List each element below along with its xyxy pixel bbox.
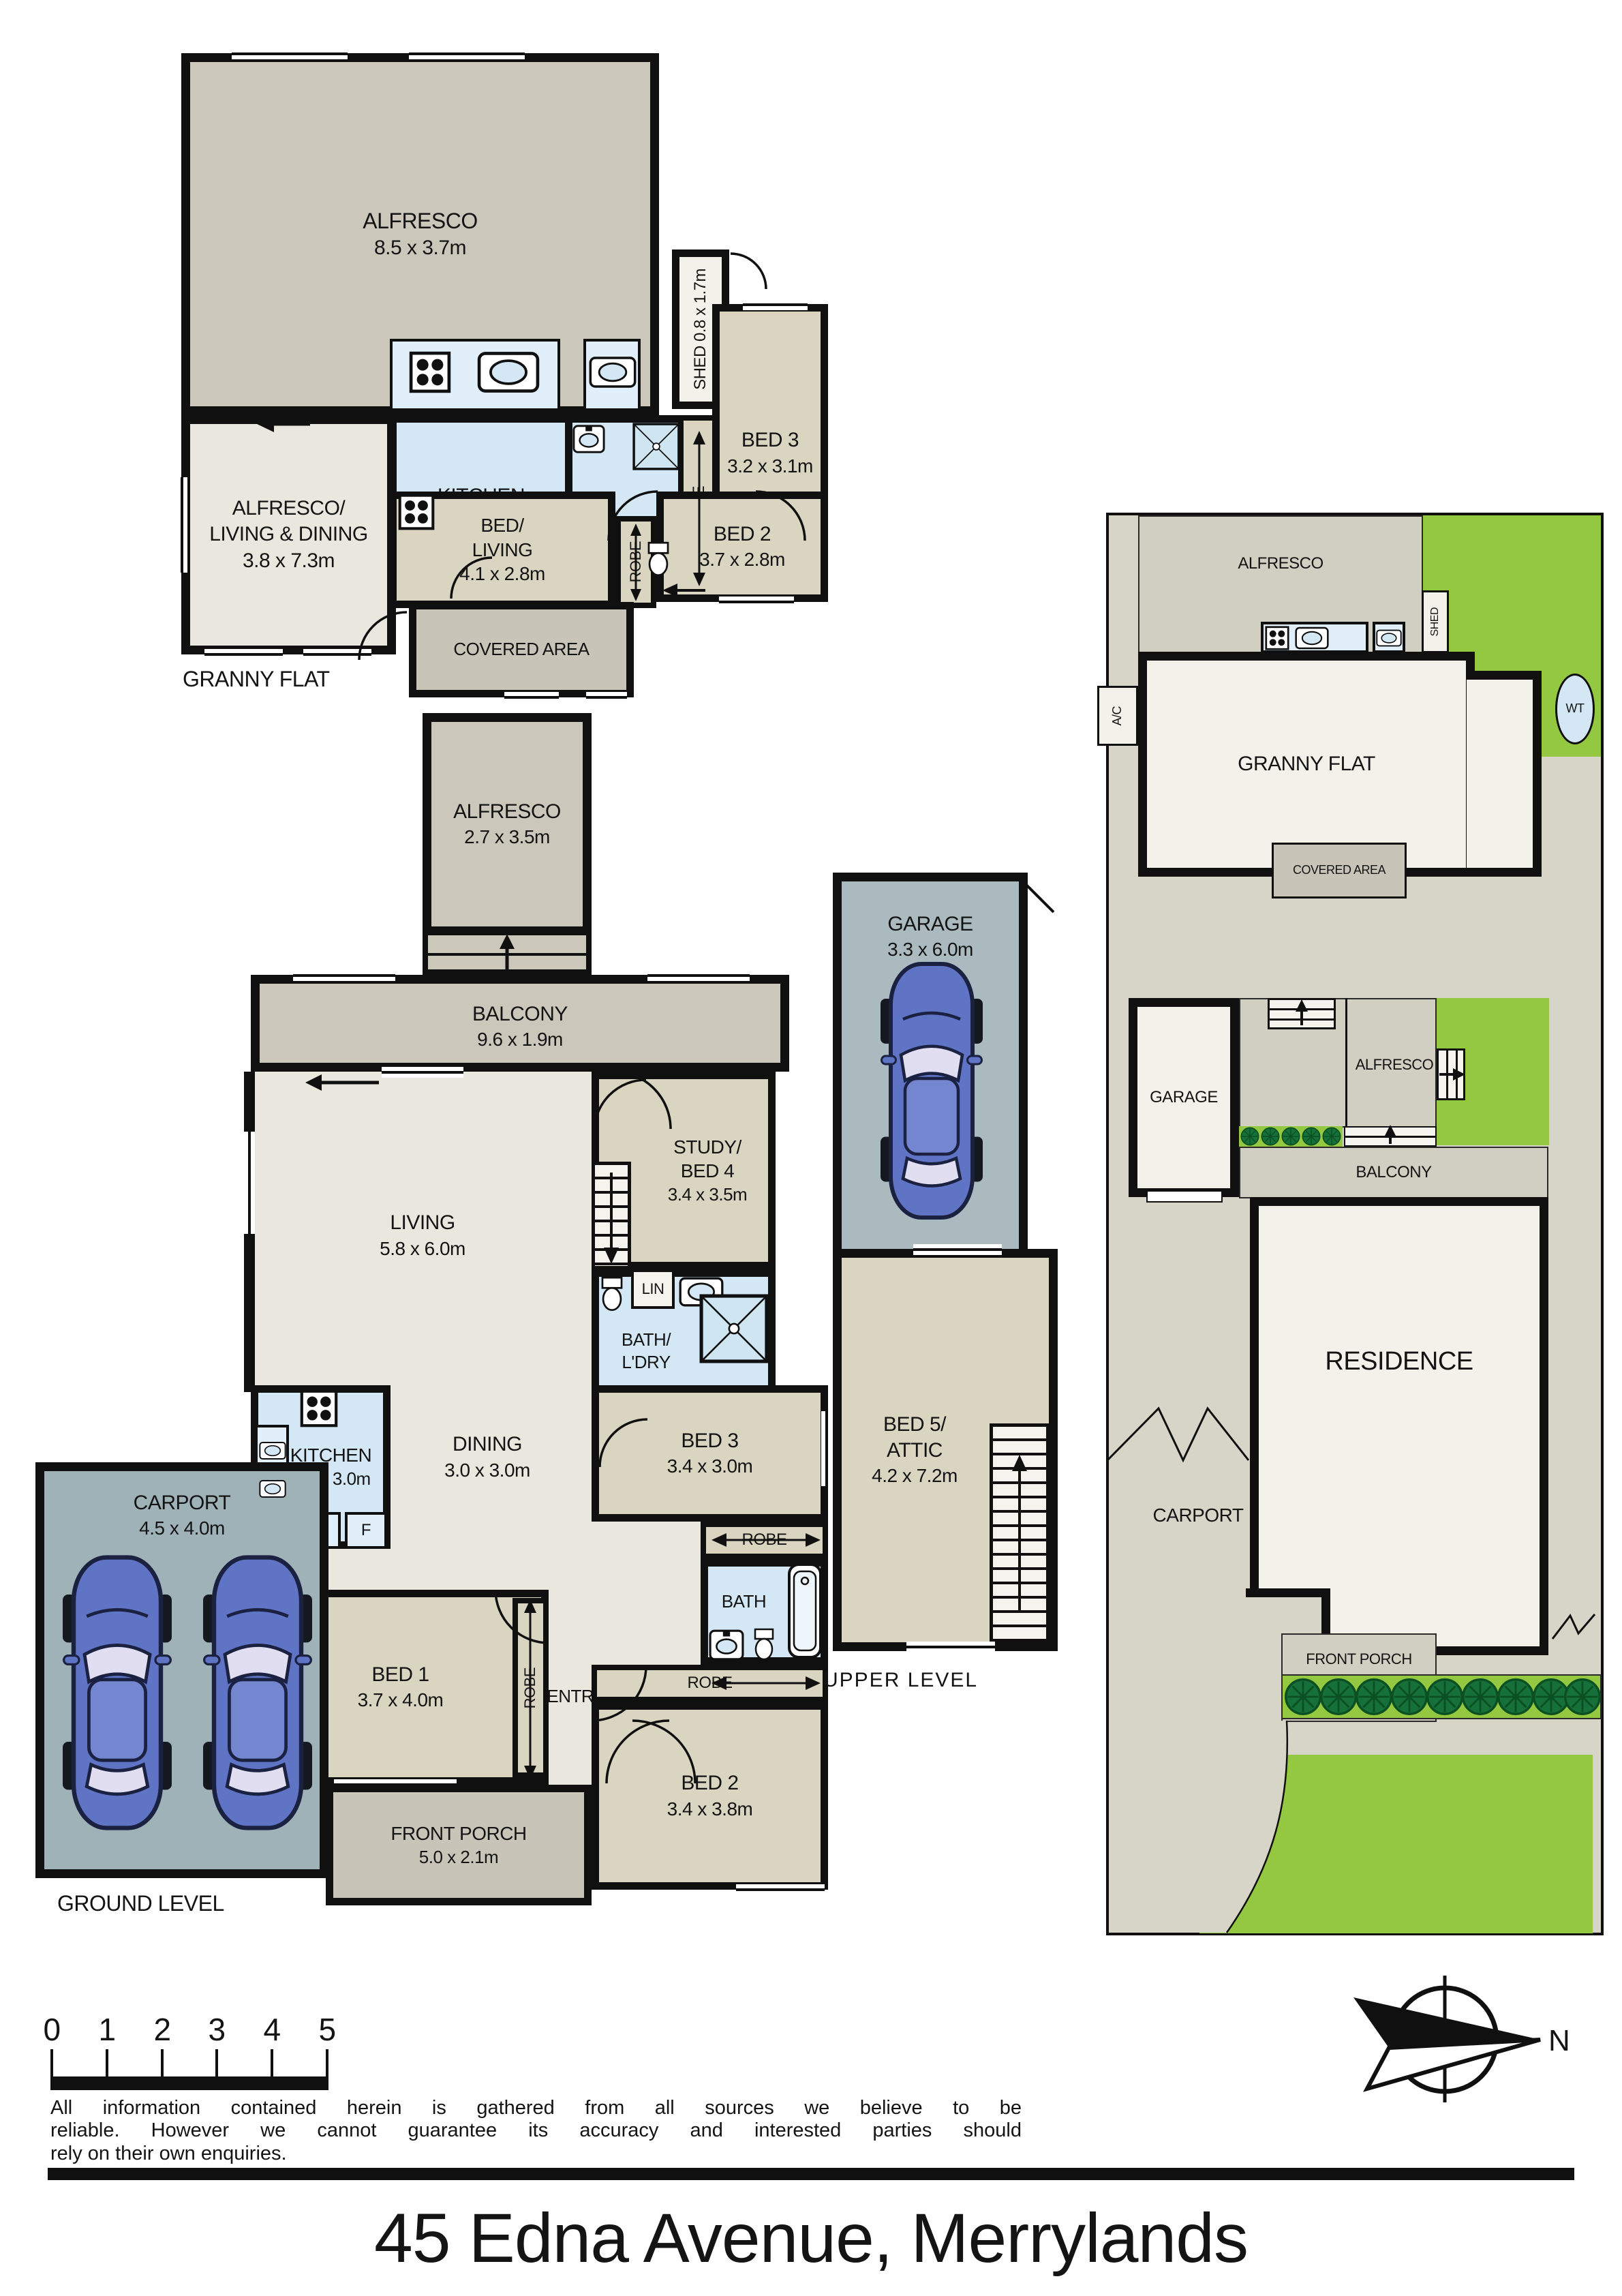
site-porch-label: FRONT PORCH (1306, 1650, 1411, 1669)
gf-bench-kitchen (390, 339, 560, 411)
site-wt-label: WT (1566, 701, 1585, 716)
site-shed: SHED (1422, 590, 1449, 653)
window (177, 477, 187, 573)
scale-3: 3 (208, 2010, 225, 2050)
gl-balcony-label: BALCONY (472, 1001, 568, 1027)
scale-2: 2 (153, 2010, 170, 2050)
window (382, 1067, 463, 1078)
site-covered-area: COVERED AREA (1272, 843, 1407, 898)
gl-fridge-label: F (361, 1520, 371, 1541)
gl-porch-label: FRONT PORCH (391, 1822, 526, 1846)
gl-bed3-label: BED 3 (681, 1428, 738, 1454)
site-stairs-top (1268, 998, 1336, 1029)
disclaimer-line3: rely on their own enquiries. (50, 2143, 1022, 2165)
scale-5: 5 (318, 2010, 335, 2050)
disclaimer-line1: All information contained herein is gath… (50, 2097, 1022, 2119)
scale-4: 4 (263, 2010, 280, 2050)
scale-tick (326, 2049, 328, 2078)
gl-bed3-dims: 3.4 x 3.0m (667, 1454, 753, 1479)
floorplan-page: ALFRESCO 8.5 x 3.7m SHED 0.8 x 1.7m ALFR… (0, 0, 1622, 2296)
gl-study-dims: 3.4 x 3.5m (668, 1183, 747, 1206)
gl-carport-label: CARPORT (134, 1490, 231, 1516)
gf-bedliving-dims: 4.1 x 2.8m (459, 562, 545, 586)
site-residence: RESIDENCE (1250, 1197, 1548, 1655)
gl-bed1-robe: ROBE (512, 1598, 549, 1778)
window (293, 970, 395, 981)
gl-balcony-dims: 9.6 x 1.9m (477, 1027, 563, 1052)
window (244, 1132, 255, 1234)
site-bench (1261, 622, 1368, 653)
gl-staircase (592, 1162, 631, 1269)
site-steps-right (1437, 1048, 1465, 1100)
wall (1345, 998, 1347, 1128)
window (906, 1642, 995, 1652)
window (719, 596, 794, 607)
gf-alfresco-label: ALFRESCO (363, 207, 477, 235)
gl-balcony: BALCONY 9.6 x 1.9m (251, 975, 789, 1072)
gf-bedliving-label1: BED/ (480, 513, 523, 538)
scale-1: 1 (98, 2010, 115, 2050)
gf-bench-2 (583, 339, 641, 411)
gf-living-label2: LIVING & DINING (209, 522, 368, 547)
garage-plan: GARAGE 3.3 x 6.0m (833, 873, 1028, 1268)
site-garage-sill (1146, 1190, 1223, 1203)
gf-bed2-label: BED 2 (714, 522, 771, 547)
gl-bed2-label: BED 2 (681, 1770, 738, 1796)
site-bench2 (1373, 622, 1405, 653)
window (504, 692, 559, 703)
gf-bedliving-label2: LIVING (472, 538, 533, 562)
site-shed-label: SHED (1428, 607, 1442, 636)
gl-bed2-robe: ROBE (592, 1665, 828, 1702)
window (736, 1884, 825, 1895)
gl-living-label: LIVING 5.8 x 6.0m (341, 1210, 504, 1263)
gl-dining-name: DINING (453, 1433, 522, 1455)
footer-divider (48, 2168, 1574, 2180)
window (303, 649, 371, 660)
site-lawn-bottom (1199, 1755, 1593, 1933)
gf-bed2: BED 2 3.7 x 2.8m (656, 492, 828, 602)
gl-linen1: LIN (631, 1269, 675, 1309)
gl-alfresco-dims: 2.7 x 3.5m (464, 825, 550, 849)
gl-lin1-label: LIN (642, 1280, 664, 1299)
gl-bed1-dims: 3.7 x 4.0m (358, 1688, 444, 1712)
gl-plan-title: GROUND LEVEL (57, 1890, 224, 1918)
scale-tick (215, 2049, 218, 2078)
compass-icon (1353, 1976, 1540, 2102)
gl-living-name: LIVING (390, 1211, 455, 1234)
gl-bed3-robe: ROBE (701, 1522, 828, 1559)
gl-bed3: BED 3 3.4 x 3.0m (592, 1385, 828, 1522)
gl-carport: CARPORT 4.5 x 4.0m (35, 1462, 328, 1878)
disclaimer: All information contained herein is gath… (50, 2097, 1022, 2165)
gl-fridge: F (345, 1512, 387, 1549)
gl-bed1-robe-label: ROBE (521, 1667, 540, 1708)
gl-bath2-label: BATH (722, 1590, 766, 1613)
site-tree-row (1281, 1674, 1602, 1719)
gl-carport-dims: 4.5 x 4.0m (139, 1516, 225, 1541)
site-carport-label: CARPORT (1144, 1503, 1253, 1528)
site-granny-ext (1467, 671, 1542, 877)
site-alfresco-mid-label: ALFRESCO (1353, 1055, 1435, 1074)
upper-label2: ATTIC (887, 1438, 943, 1464)
gl-bathldry-label2: L'DRY (622, 1351, 670, 1374)
window (204, 649, 283, 660)
gf-bed-living: BED/ LIVING 4.1 x 2.8m (389, 492, 615, 608)
window (743, 299, 808, 310)
window (821, 1411, 832, 1486)
gf-bed2-dims: 3.7 x 2.8m (699, 547, 785, 572)
site-water-tank: WT (1555, 674, 1595, 744)
gl-bed2-robe-label: ROBE (687, 1673, 732, 1694)
gf-robe2: ROBE (615, 516, 656, 608)
gf-living-dining: ALFRESCO/ LIVING & DINING 3.8 x 7.3m (181, 415, 396, 654)
gf-shed-label: SHED 0.8 x 1.7m (690, 269, 711, 390)
site-granny-label: GRANNY FLAT (1238, 751, 1375, 777)
gl-bed2-dims: 3.4 x 3.8m (667, 1797, 753, 1822)
site-balcony: BALCONY (1239, 1147, 1548, 1198)
gf-bed3-label: BED 3 (741, 427, 799, 453)
compass-north-label: N (1548, 2022, 1570, 2060)
gf-living-dims: 3.8 x 7.3m (243, 548, 335, 574)
gl-dining-dims: 3.0 x 3.0m (444, 1460, 530, 1481)
window (232, 48, 348, 59)
site-balcony-label: BALCONY (1356, 1162, 1431, 1183)
gf-living-label1: ALFRESCO/ (232, 496, 346, 522)
garage-dims: 3.3 x 6.0m (887, 937, 973, 962)
site-garage: GARAGE (1129, 998, 1239, 1197)
window (647, 970, 750, 981)
disclaimer-line2: reliable. However we cannot guarantee it… (50, 2119, 1022, 2142)
window (409, 48, 525, 59)
gf-covered-label: COVERED AREA (453, 638, 589, 661)
gl-bath2: BATH (701, 1559, 828, 1665)
site-steps-mid (1344, 1126, 1437, 1147)
gl-bed1-label: BED 1 (371, 1662, 429, 1688)
site-ac: A/C (1097, 686, 1138, 746)
site-alfresco-top-label: ALFRESCO (1238, 554, 1323, 575)
scale-tick (161, 2049, 164, 2078)
garage-label: GARAGE (887, 911, 973, 937)
upper-label1: BED 5/ (883, 1412, 946, 1438)
gf-plan-title: GRANNY FLAT (183, 665, 330, 693)
scale-tick (271, 2049, 273, 2078)
gl-alfresco-steps (423, 930, 592, 975)
gl-porch-dims: 5.0 x 2.1m (419, 1846, 498, 1869)
gf-alfresco-dims: 8.5 x 3.7m (374, 235, 466, 261)
gf-covered-area: COVERED AREA (409, 602, 634, 697)
page-title: 45 Edna Avenue, Merrylands (0, 2194, 1622, 2283)
site-shrub-strip (1239, 1126, 1343, 1147)
gf-robe2-label: ROBE (626, 541, 645, 582)
scale-tick (106, 2049, 108, 2078)
site-covered-label: COVERED AREA (1293, 862, 1386, 878)
gl-dining-label: DINING 3.0 x 3.0m (405, 1432, 569, 1484)
gl-living-dims: 5.8 x 6.0m (380, 1238, 465, 1259)
gl-study-label1: STUDY/ (673, 1135, 741, 1160)
gl-bed1: BED 1 3.7 x 4.0m (293, 1590, 549, 1785)
gl-bathldry-label1: BATH/ (622, 1329, 671, 1351)
window (586, 692, 627, 703)
scale-tick (50, 2049, 53, 2078)
site-ac-label: A/C (1110, 706, 1125, 726)
gl-bed2: BED 2 3.4 x 3.8m (592, 1702, 828, 1890)
gl-alfresco-label: ALFRESCO (453, 799, 561, 825)
gl-bed3-robe-label: ROBE (741, 1530, 786, 1551)
site-garage-label: GARAGE (1150, 1087, 1218, 1108)
gl-front-porch: FRONT PORCH 5.0 x 2.1m (326, 1785, 592, 1905)
window (913, 1244, 1002, 1255)
upper-plan-title: UPPER LEVEL (823, 1667, 978, 1693)
site-residence-label: RESIDENCE (1325, 1345, 1473, 1378)
upper-staircase (990, 1423, 1050, 1644)
gl-alfresco: ALFRESCO 2.7 x 3.5m (423, 713, 592, 935)
upper-dims: 4.2 x 7.2m (872, 1464, 958, 1488)
gl-study-label2: BED 4 (681, 1159, 734, 1183)
gf-bed3-dims: 3.2 x 3.1m (727, 454, 813, 479)
scale-bar-fill (50, 2076, 328, 2090)
scale-0: 0 (43, 2010, 60, 2050)
